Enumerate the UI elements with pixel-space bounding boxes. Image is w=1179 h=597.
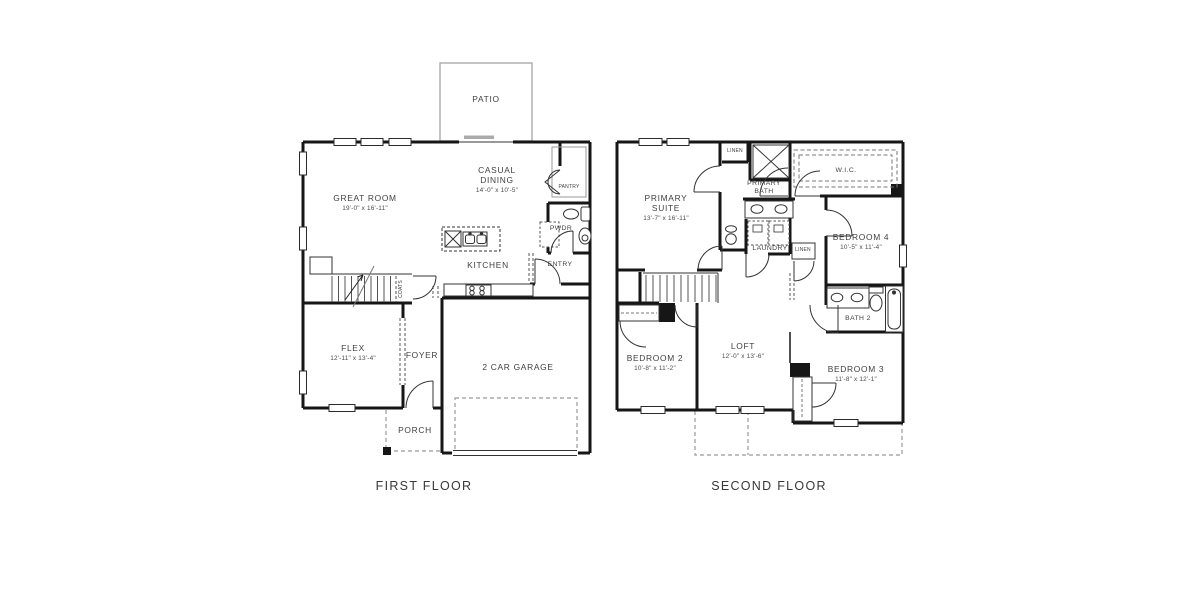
room-label-primary-suite: PRIMARY SUITE 13'-7" x 16'-11" <box>643 194 689 222</box>
wall-blocks <box>383 184 904 455</box>
cased-openings <box>396 253 794 385</box>
room-label-patio: PATIO <box>472 95 499 105</box>
room-label-coats: COATS <box>399 280 405 298</box>
floor-plan-page: PATIO GREAT ROOM 19'-0" x 16'-11" CASUAL… <box>0 0 1179 597</box>
room-label-pantry: PANTRY <box>558 185 579 191</box>
room-label-wic: W.I.C. <box>836 167 857 175</box>
room-label-primary-bath: PRIMARY BATH <box>747 180 781 196</box>
room-label-linen-hall: LINEN <box>795 248 811 254</box>
garage-door <box>452 449 578 457</box>
stairs-first-floor <box>310 257 412 307</box>
room-label-porch: PORCH <box>398 426 432 436</box>
room-label-pwdr: PWDR <box>550 225 572 233</box>
bath2-door <box>810 305 838 333</box>
room-label-bedroom4: BEDROOM 4 10'-5" x 11'-4" <box>833 233 890 251</box>
room-label-laundry: LAUNDRY <box>752 245 787 253</box>
stairs-up-arrow <box>345 275 363 300</box>
bedroom2-closet-door <box>620 321 646 347</box>
laundry-door <box>746 254 769 277</box>
room-label-kitchen: KITCHEN <box>467 261 509 271</box>
primary-suite-door <box>698 246 722 270</box>
room-label-foyer: FOYER <box>406 351 438 361</box>
front-door <box>406 381 433 408</box>
room-label-bedroom3: BEDROOM 3 11'-8" x 12'-1" <box>828 365 885 383</box>
stairs-second-floor <box>643 273 718 303</box>
room-label-entry: ENTRY <box>548 261 573 269</box>
room-label-flex: FLEX 12'-11" x 13'-4" <box>330 344 376 362</box>
garage-pad-outline <box>455 398 577 452</box>
first-floor-title: FIRST FLOOR <box>376 479 473 493</box>
room-label-casual-dining: CASUAL DINING 14'-0" x 10'-5" <box>476 166 518 194</box>
floor-plan-drawing <box>0 0 1179 597</box>
bedroom3-closet-door <box>812 383 836 407</box>
range <box>466 285 491 296</box>
kitchen-fixtures <box>442 222 559 296</box>
bath2-toilet <box>870 295 882 311</box>
bedroom2-door <box>675 305 697 327</box>
primary-bath-door <box>694 166 720 192</box>
porch-post <box>383 447 391 455</box>
pwdr-sink <box>564 209 579 219</box>
hall-linen-door <box>794 261 814 281</box>
room-label-bedroom2: BEDROOM 2 10'-8" x 11'-2" <box>627 354 684 372</box>
room-label-bath2: BATH 2 <box>845 315 871 323</box>
room-label-linen-upper: LINEN <box>727 149 743 155</box>
patio-slider-door <box>459 136 513 147</box>
second-floor-footprint-outline <box>695 411 902 455</box>
room-label-great-room: GREAT ROOM 19'-0" x 16'-11" <box>333 194 396 212</box>
second-floor-title: SECOND FLOOR <box>711 479 827 493</box>
room-label-loft: LOFT 12'-0" x 13'-6" <box>722 342 764 360</box>
bath2-toilet-tank <box>869 287 883 293</box>
coats-door <box>413 276 436 299</box>
primary-toilet <box>726 226 737 232</box>
room-label-garage: 2 CAR GARAGE <box>482 363 553 373</box>
